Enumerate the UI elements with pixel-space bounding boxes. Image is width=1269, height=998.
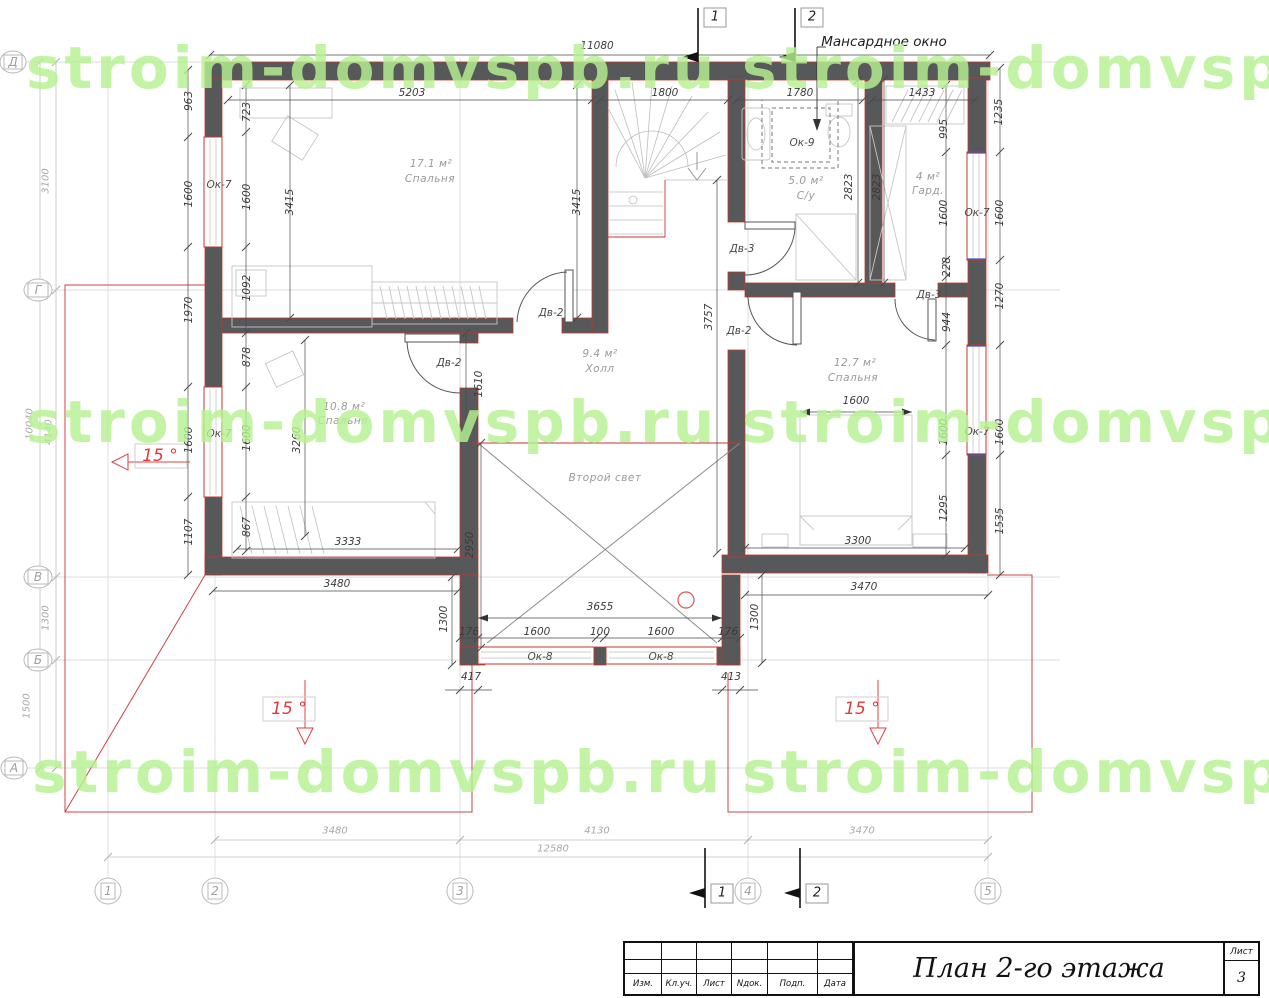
nightstand: [762, 534, 788, 547]
title-block-col-label: Кл.уч.: [662, 974, 697, 994]
faint-dimension-ticks: [36, 58, 992, 861]
door-dv3-wardrobe: [895, 299, 936, 341]
chair: [265, 351, 303, 387]
title-block-cell: [732, 943, 768, 960]
section-marks: [682, 8, 828, 908]
door-dv2-bedroom2: [405, 334, 460, 393]
title-block-cell: [732, 960, 768, 974]
title-block-cell: [625, 960, 662, 974]
title-block-cell: [768, 960, 818, 974]
title-block-col-label: Изм.: [625, 974, 662, 994]
title-block-cell: [625, 943, 662, 960]
title-block-cell: [818, 960, 853, 974]
staircase: [608, 82, 728, 237]
sink: [742, 108, 770, 160]
toilet: [828, 117, 850, 147]
door-dv2-bedroom3: [748, 292, 801, 345]
sheet-cell: Лист 3: [1225, 943, 1258, 994]
door-dv3-bathroom: [745, 222, 795, 275]
faint-dimension-lines: [40, 62, 988, 857]
title-block-col-label: Лист: [697, 974, 732, 994]
title-block-columns: Изм.Кл.уч.ЛистNдок.Подп.Дата: [625, 943, 855, 994]
title-block-cell: [662, 960, 697, 974]
title-block: Изм.Кл.уч.ЛистNдок.Подп.Дата План 2-го э…: [623, 941, 1260, 996]
title-block-cell: [818, 943, 853, 960]
sheet-label: Лист: [1225, 943, 1258, 961]
grid-markers: [0, 51, 1001, 904]
chair: [272, 116, 318, 161]
bed: [800, 415, 912, 545]
sheet-number: 3: [1225, 961, 1258, 994]
drawing-title: План 2-го этажа: [855, 943, 1225, 994]
title-block-col-label: Подп.: [768, 974, 818, 994]
window-ok8-left: [478, 647, 594, 664]
skylight-ok9: [762, 100, 838, 168]
title-block-cell: [697, 960, 732, 974]
red-circle-mark: [678, 592, 694, 608]
title-block-col-label: Дата: [818, 974, 853, 994]
window-ok7-left-top: [204, 137, 222, 247]
title-block-cell: [697, 943, 732, 960]
second-light-opening: [472, 443, 740, 643]
window-ok7-right-bottom: [967, 345, 986, 455]
window-ok8-right: [606, 647, 717, 664]
door-dv2-bedroom1: [517, 270, 573, 322]
slope-markers: [112, 444, 888, 744]
title-block-cell: [768, 943, 818, 960]
title-block-cell: [662, 943, 697, 960]
dimension-arrows: [478, 409, 912, 622]
mansard-leader: [813, 47, 826, 131]
floor-plan-canvas: 1108052031800178014339951235282328231600…: [0, 0, 1269, 998]
window-ok7-left-bottom: [204, 387, 222, 497]
stair-direction-arrow: [688, 152, 706, 180]
nightstand: [913, 534, 947, 547]
title-block-col-label: Nдок.: [732, 974, 768, 994]
desk: [240, 88, 332, 118]
grid-lines: [25, 58, 1060, 876]
walls: [205, 62, 990, 665]
window-ok7-right-top: [967, 152, 986, 260]
floor-plan-drawing: [0, 0, 1269, 998]
